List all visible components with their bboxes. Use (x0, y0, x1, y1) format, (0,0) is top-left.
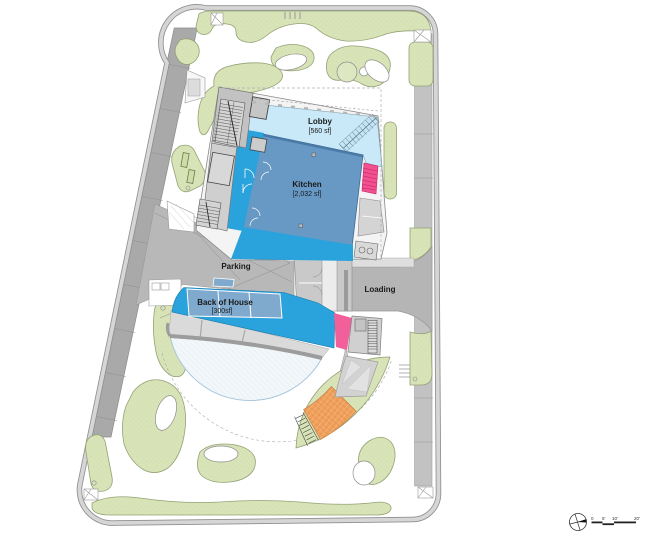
svg-text:[300sf]: [300sf] (211, 308, 232, 315)
svg-text:Kitchen: Kitchen (292, 180, 321, 189)
svg-text:Lobby: Lobby (308, 117, 333, 126)
svg-text:[560 sf]: [560 sf] (309, 128, 332, 135)
svg-text:Back of House: Back of House (197, 298, 253, 307)
svg-text:[2,032 sf]: [2,032 sf] (293, 191, 322, 198)
svg-text:Parking: Parking (221, 262, 250, 271)
svg-text:20': 20' (634, 516, 640, 521)
svg-text:10': 10' (612, 516, 618, 521)
svg-text:5': 5' (602, 516, 606, 521)
svg-text:Loading: Loading (364, 285, 395, 294)
